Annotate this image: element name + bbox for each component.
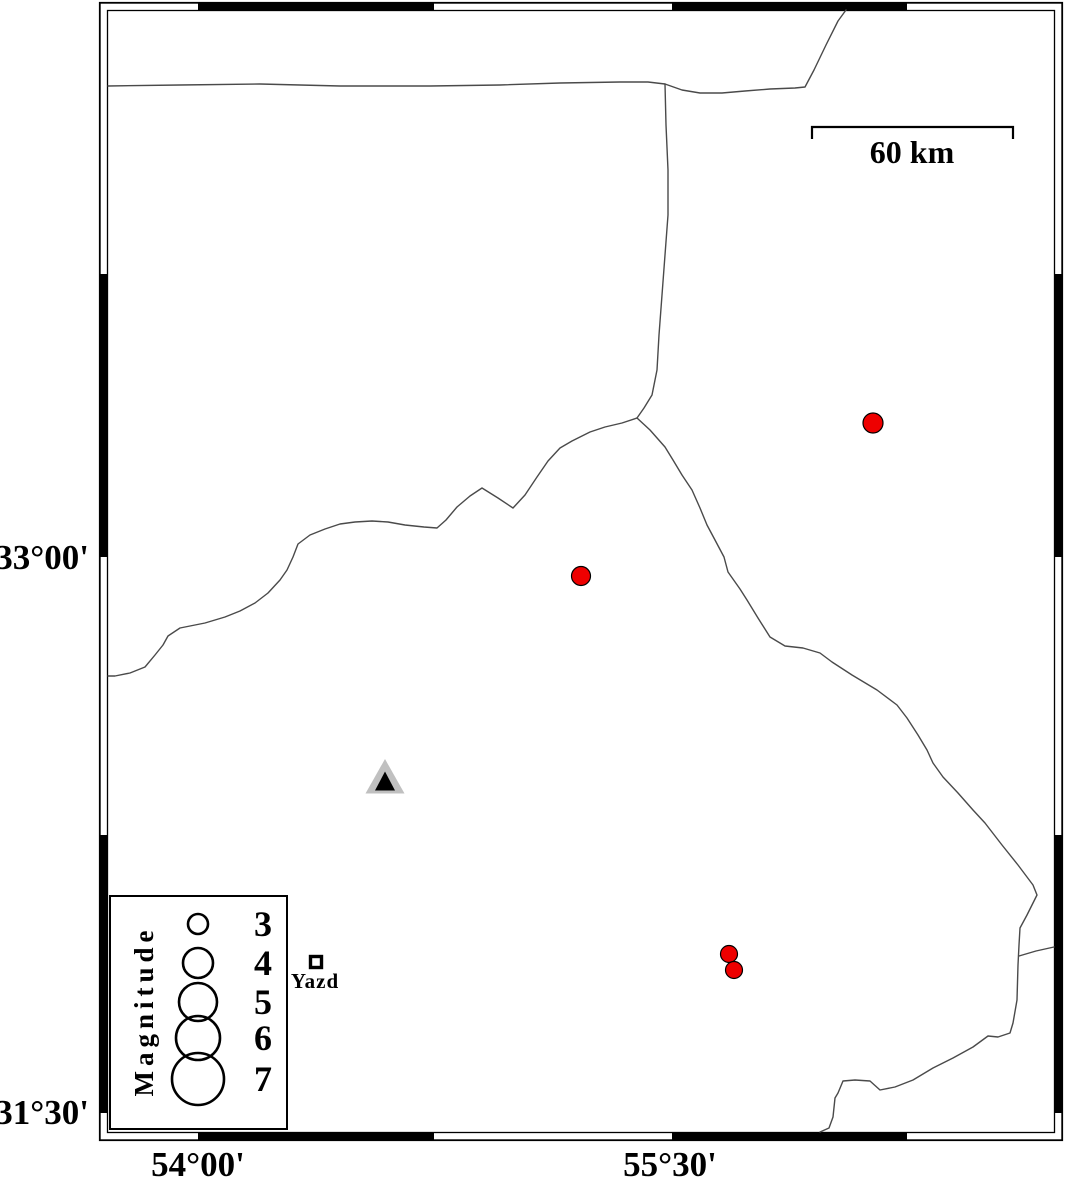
legend-label-5: 5: [254, 982, 272, 1022]
legend-label-6: 6: [254, 1018, 272, 1058]
scale-bar: 60 km: [812, 127, 1013, 170]
legend-label-4: 4: [254, 943, 272, 983]
frame-tick: [672, 1133, 907, 1140]
map-line-north-boundary: [637, 84, 668, 418]
earthquake-epicenter: [572, 567, 591, 586]
lon-label-55-30: 55°30': [623, 1145, 717, 1181]
city-label: Yazd: [291, 969, 339, 993]
city-marker: Yazd: [291, 957, 339, 994]
magnitude-legend: Magnitude 34567: [110, 896, 287, 1129]
city-square: [311, 957, 322, 968]
frame-tick: [198, 1133, 434, 1140]
map-canvas: 60 km Yazd Magnitude 34567 33°00' 31°30'…: [0, 0, 1066, 1181]
lat-label-33-00: 33°00': [0, 538, 89, 577]
frame-tick: [672, 4, 907, 11]
map-line-east-connector: [1019, 947, 1054, 956]
seismicity-map-figure: 60 km Yazd Magnitude 34567 33°00' 31°30'…: [0, 0, 1066, 1181]
map-line-west-boundary: [108, 418, 637, 676]
legend-title: Magnitude: [129, 925, 159, 1096]
earthquake-epicenter: [726, 962, 743, 979]
frame-tick: [1055, 835, 1062, 1113]
earthquake-epicenters: [572, 413, 884, 979]
map-line-northern-road: [108, 10, 846, 93]
earthquake-epicenter: [863, 413, 883, 433]
frame-tick: [198, 4, 434, 11]
lon-label-54-00: 54°00': [151, 1145, 245, 1181]
frame-tick: [101, 274, 108, 557]
station-marker: [366, 759, 405, 794]
scale-bar-label: 60 km: [870, 134, 955, 170]
legend-label-7: 7: [254, 1059, 272, 1099]
frame-tick: [1055, 274, 1062, 557]
map-line-southeast-boundary: [637, 418, 1037, 1132]
frame-tick: [101, 835, 108, 1113]
legend-label-3: 3: [254, 904, 272, 944]
earthquake-epicenter: [721, 946, 738, 963]
lat-label-31-30: 31°30': [0, 1093, 89, 1132]
